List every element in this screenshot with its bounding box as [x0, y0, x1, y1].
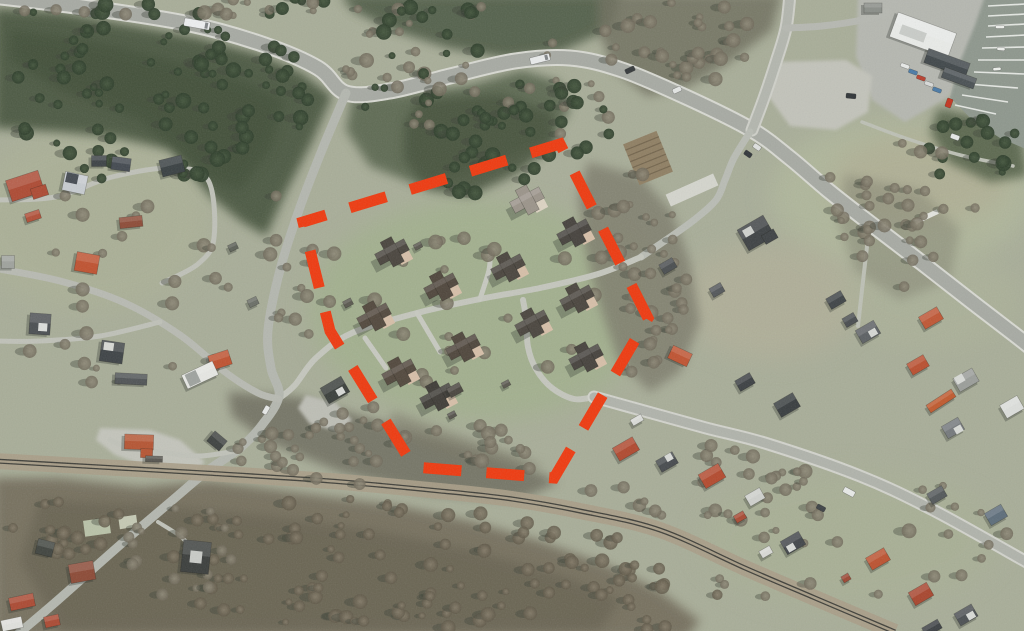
aerial-map-canvas — [0, 0, 1024, 631]
aerial-map-view — [0, 0, 1024, 631]
photo-grain-overlay — [0, 0, 1024, 631]
